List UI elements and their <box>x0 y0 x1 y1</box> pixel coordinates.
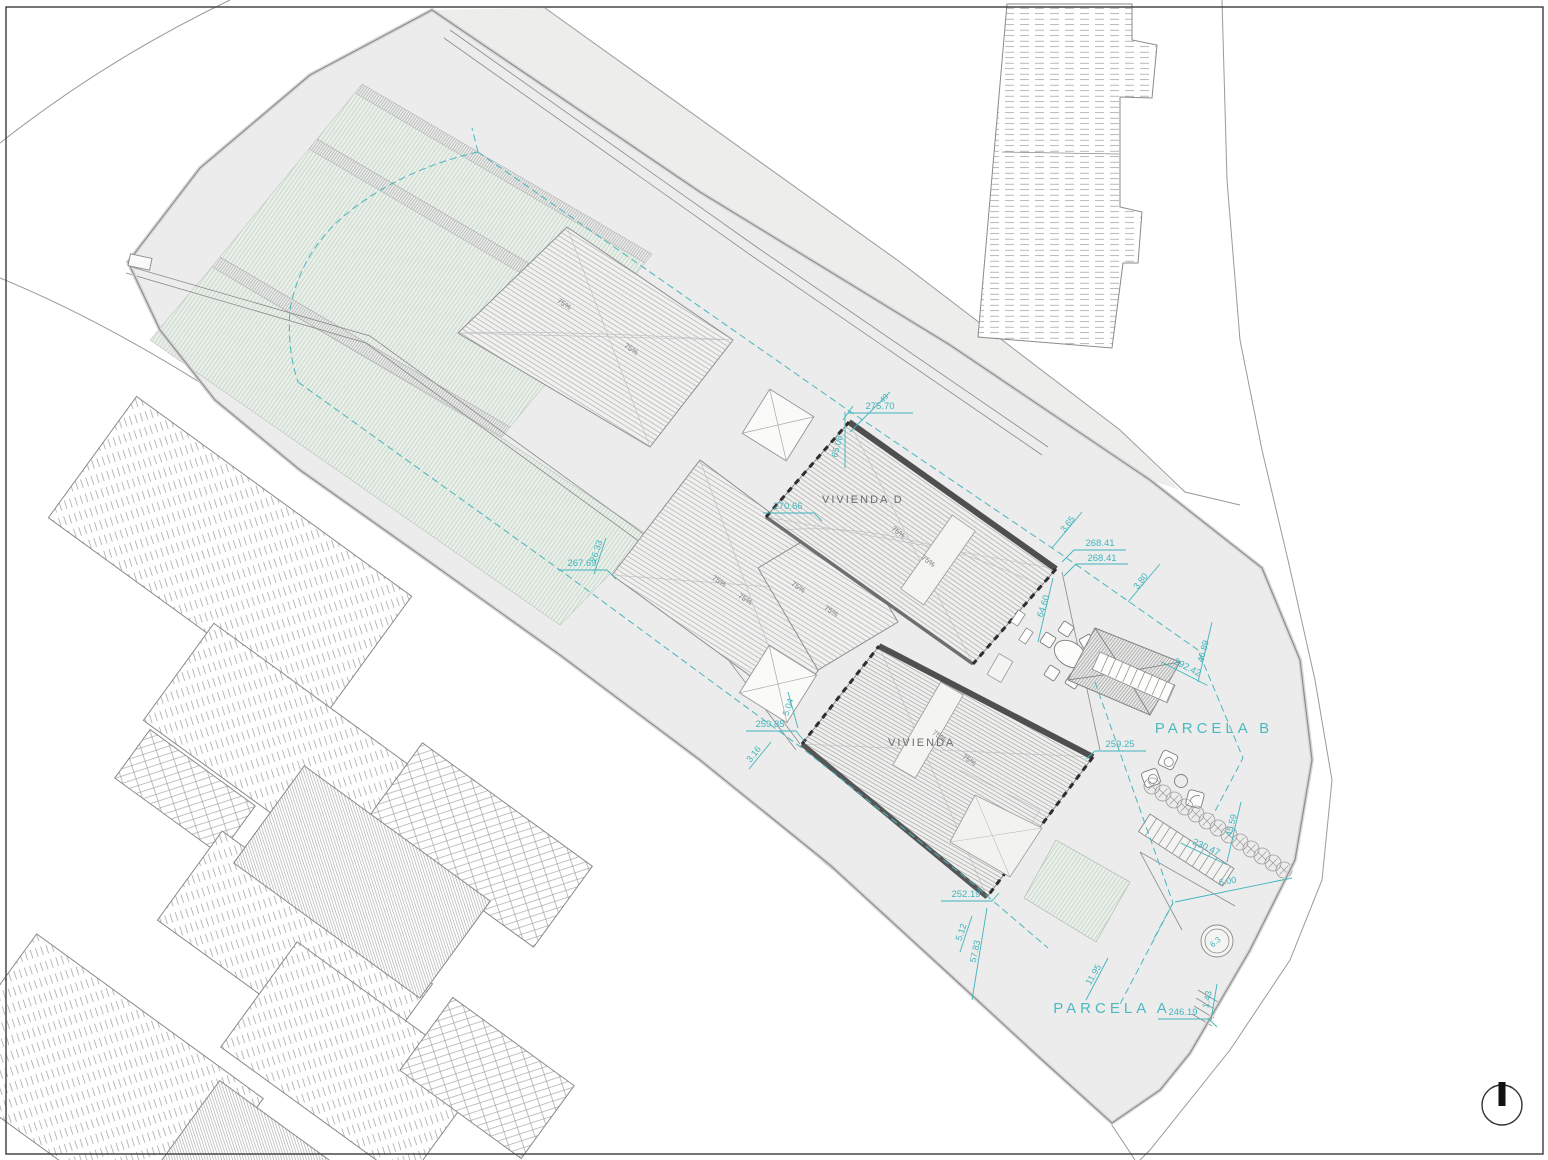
neighbor-building-southwest-complex <box>0 623 592 1160</box>
level-268-41-a: 268.41 <box>1085 538 1114 549</box>
neighbor-building-northeast <box>978 4 1157 348</box>
level-252-19: 252.19 <box>951 889 980 900</box>
level-259-25: 259.25 <box>1105 739 1134 750</box>
north-arrow-icon <box>1482 1082 1522 1125</box>
level-246-19: 246.19 <box>1168 1007 1197 1018</box>
parcela-b-label: PARCELA B <box>1155 720 1273 737</box>
level-268-41-b: 268.41 <box>1087 553 1116 564</box>
vivienda-d-label: VIVIENDA D <box>822 494 904 506</box>
parcela-a-label: PARCELA A <box>1053 1000 1170 1017</box>
well-symbol: 6.3 <box>1201 925 1233 957</box>
level-259-85: 259.85 <box>755 719 784 730</box>
level-270-66: 270.66 <box>773 501 802 512</box>
site-plan-page: 75% 75% 75% 75% 75% 75% VIVIENDA <box>0 0 1548 1160</box>
level-275-70: 275.70 <box>865 401 894 412</box>
site-plan-canvas: 75% 75% 75% 75% 75% 75% VIVIENDA <box>0 0 1548 1160</box>
road-curve-top-left <box>0 0 230 143</box>
